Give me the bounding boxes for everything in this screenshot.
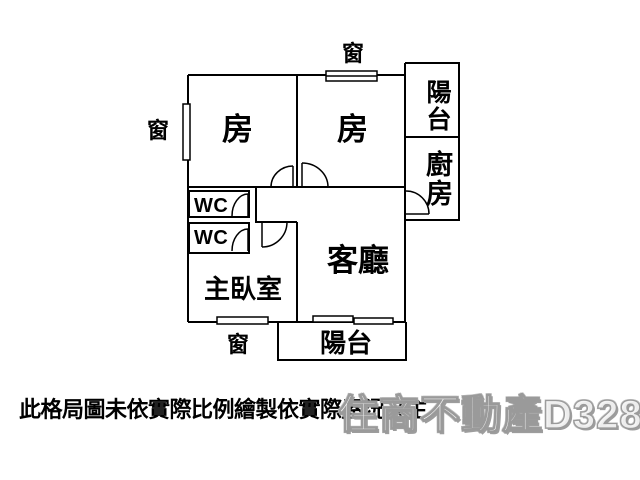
door-master-bedroom xyxy=(262,222,287,247)
label-bedroom-right: 房 xyxy=(337,114,368,145)
brand-watermark: 住商不動產D328 xyxy=(338,382,640,440)
label-window-bottom: 窗 xyxy=(227,334,249,356)
door-symbols xyxy=(232,163,429,251)
label-wc-upper: WC xyxy=(194,196,228,216)
label-balcony-bottom: 陽台 xyxy=(320,330,372,356)
floor-plan-image: 窗 窗 窗 房 房 陽台 廚房 WC WC 主臥室 客廳 陽台 此格局圖未依實際… xyxy=(0,0,640,480)
label-window-top: 窗 xyxy=(342,43,364,65)
door-wc-upper xyxy=(232,194,248,216)
label-bedroom-left: 房 xyxy=(222,114,253,145)
door-bedroom-left xyxy=(271,166,293,187)
label-kitchen: 廚房 xyxy=(423,150,450,208)
label-master-bedroom: 主臥室 xyxy=(204,276,282,302)
window-bottom xyxy=(217,317,268,324)
window-left xyxy=(183,104,190,160)
label-balcony-right: 陽台 xyxy=(424,79,449,133)
window-top xyxy=(326,71,377,81)
label-living-room: 客廳 xyxy=(327,245,389,276)
label-wc-lower: WC xyxy=(194,228,228,248)
label-window-left: 窗 xyxy=(147,120,169,142)
door-bedroom-right xyxy=(302,163,328,187)
door-wc-lower xyxy=(232,229,248,251)
wall-foyer xyxy=(256,187,297,222)
